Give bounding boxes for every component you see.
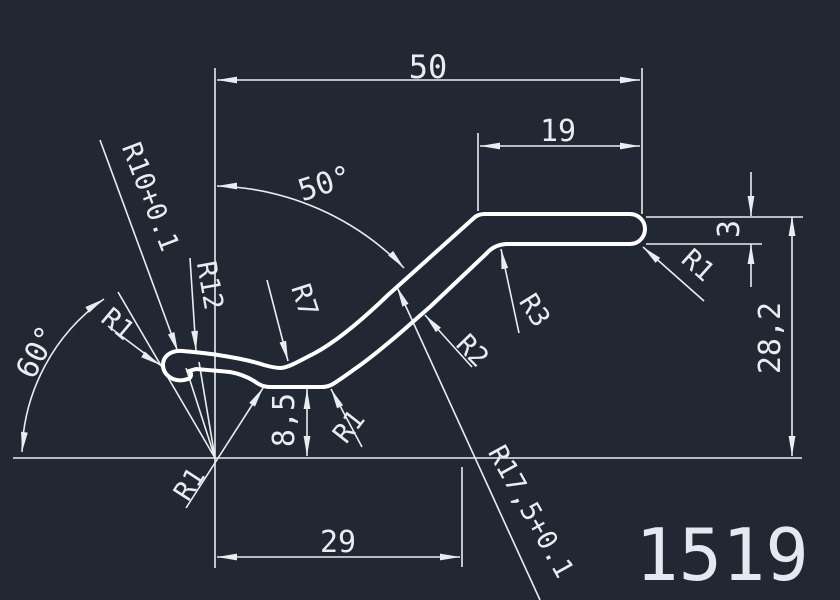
drawing-background — [0, 0, 840, 600]
dim-bottom-width-label: 29 — [320, 525, 356, 560]
dim-overall-width-label: 50 — [409, 48, 448, 86]
cad-viewport[interactable]: 50 19 29 50° 60° 3 28,2 8,5 R10+0.1 R12 … — [0, 0, 840, 600]
dim-thickness-label: 3 — [712, 220, 747, 238]
cad-drawing-canvas[interactable]: 50 19 29 50° 60° 3 28,2 8,5 R10+0.1 R12 … — [0, 0, 840, 600]
dim-valley-height-label: 8,5 — [267, 393, 302, 447]
dim-top-flange-width-label: 19 — [540, 114, 576, 149]
part-number-label: 1519 — [635, 513, 808, 597]
dim-overall-height-label: 28,2 — [753, 302, 788, 374]
